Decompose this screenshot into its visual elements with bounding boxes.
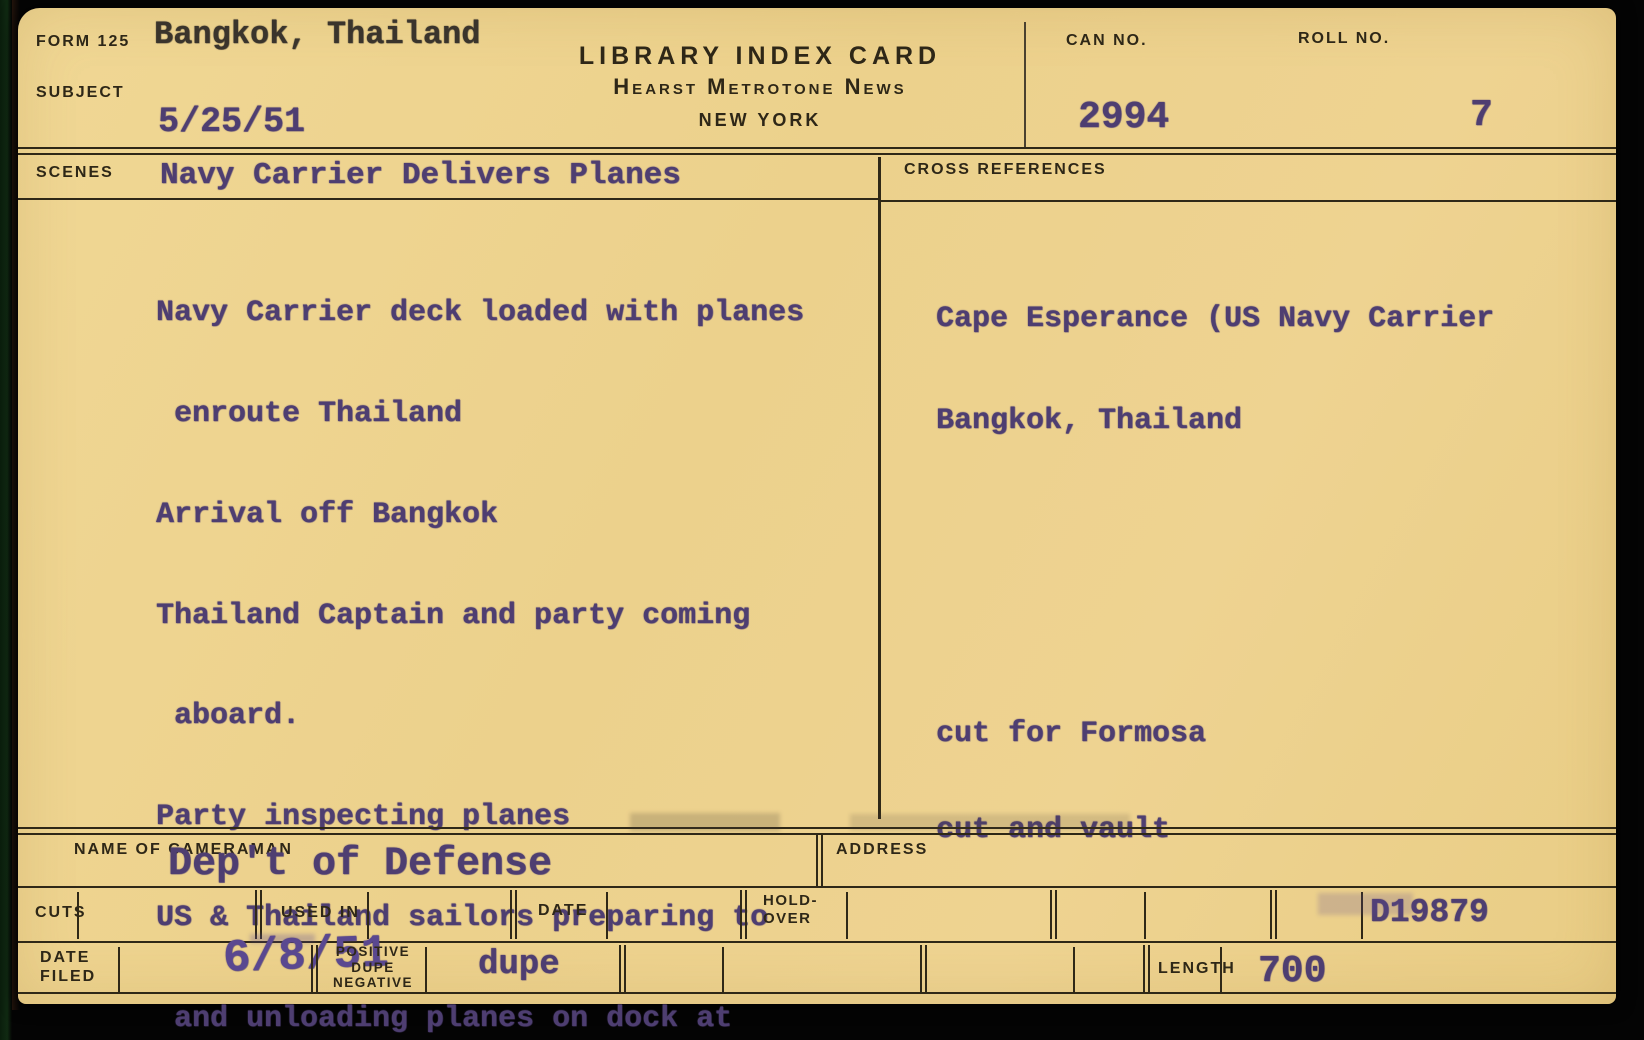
- subject-label: SUBJECT: [36, 84, 125, 102]
- subject-date-typed: 5/25/51: [158, 102, 305, 142]
- scan-smudge: [250, 934, 315, 943]
- footer-row1-rule: [18, 886, 1616, 888]
- roll-no-value: 7: [1470, 94, 1493, 137]
- grid-line: [1143, 945, 1150, 992]
- scan-edge-stripe: [0, 0, 12, 1040]
- grid-line: [77, 892, 79, 939]
- cameraman-value-typed: Dep't of Defense: [168, 842, 552, 887]
- scan-smudge: [850, 814, 1130, 830]
- grid-line: [846, 892, 848, 939]
- form-number-label: FORM 125: [36, 33, 130, 51]
- dupe-type-value-typed: dupe: [478, 946, 560, 984]
- cross-references-notes: cut for Formosa cut and vault: [936, 654, 1206, 910]
- length-label: LENGTH: [1158, 960, 1236, 978]
- date-filed-label: DATE FILED: [40, 948, 96, 986]
- grid-line: [118, 947, 120, 992]
- grid-line: [510, 890, 517, 939]
- scene-line: enroute Thailand: [156, 398, 804, 432]
- masthead-city: NEW YORK: [510, 110, 1010, 131]
- scenes-title-typed: Navy Carrier Delivers Planes: [160, 158, 681, 193]
- can-no-label: CAN NO.: [1066, 32, 1148, 50]
- grid-line: [1050, 890, 1057, 939]
- scene-line: US & Thailand sailors preparing to: [156, 902, 804, 936]
- cross-references-label: CROSS REFERENCES: [904, 161, 1107, 179]
- cross-reference-note: cut for Formosa: [936, 718, 1206, 750]
- footer-bottom-rule: [18, 992, 1616, 994]
- masthead-org: Hearst Metrotone News: [510, 74, 1010, 100]
- masthead-title: LIBRARY INDEX CARD: [510, 42, 1010, 71]
- positive-dupe-negative-label: POSITIVE DUPE NEGATIVE: [323, 944, 423, 991]
- holdover-label: HOLD- OVER: [763, 892, 818, 928]
- scene-line: Navy Carrier deck loaded with planes: [156, 297, 804, 331]
- roll-no-label: ROLL NO.: [1298, 30, 1390, 48]
- cross-references-underline: [881, 200, 1616, 202]
- used-in-label: USED IN: [281, 904, 360, 922]
- library-index-card: FORM 125 Bangkok, Thailand SUBJECT 5/25/…: [18, 8, 1616, 1004]
- grid-line: [1270, 890, 1277, 939]
- scene-line: and unloading planes on dock at: [156, 1003, 804, 1037]
- grid-line: [740, 890, 747, 939]
- grid-line: [425, 947, 427, 992]
- header-divider-line: [1024, 22, 1026, 148]
- grid-line: [619, 945, 626, 992]
- grid-line: [1073, 947, 1075, 992]
- cross-references-entries: Cape Esperance (US Navy Carrier Bangkok,…: [936, 234, 1494, 506]
- scenes-title-underline: [18, 198, 878, 200]
- length-value-typed: 700: [1258, 950, 1326, 993]
- cross-reference-entry: Bangkok, Thailand: [936, 404, 1494, 438]
- grid-line: [1144, 892, 1146, 939]
- scan-smudge: [1318, 893, 1413, 915]
- cross-reference-entry: Cape Esperance (US Navy Carrier: [936, 302, 1494, 336]
- grid-line: [1220, 947, 1222, 992]
- grid-line: [311, 945, 318, 992]
- header-bottom-rule: [18, 147, 1616, 155]
- scenes-text-block: Navy Carrier deck loaded with planes enr…: [156, 230, 804, 1040]
- grid-line: [920, 945, 927, 992]
- scene-line: Arrival off Bangkok: [156, 499, 804, 533]
- address-label: ADDRESS: [836, 841, 928, 859]
- grid-line: [606, 892, 608, 939]
- location-typed: Bangkok, Thailand: [154, 16, 480, 53]
- scenes-label: SCENES: [36, 164, 114, 182]
- can-no-value: 2994: [1078, 96, 1169, 139]
- scene-line: Thailand Captain and party coming: [156, 600, 804, 634]
- date-label: DATE: [538, 902, 588, 920]
- scenes-crossref-divider: [878, 157, 881, 819]
- scene-line: aboard.: [156, 700, 804, 734]
- scanned-card-stage: FORM 125 Bangkok, Thailand SUBJECT 5/25/…: [0, 0, 1644, 1040]
- footer-top-rule: [18, 827, 1616, 835]
- cameraman-address-divider: [816, 835, 823, 886]
- scan-smudge: [630, 813, 780, 831]
- grid-line: [722, 947, 724, 992]
